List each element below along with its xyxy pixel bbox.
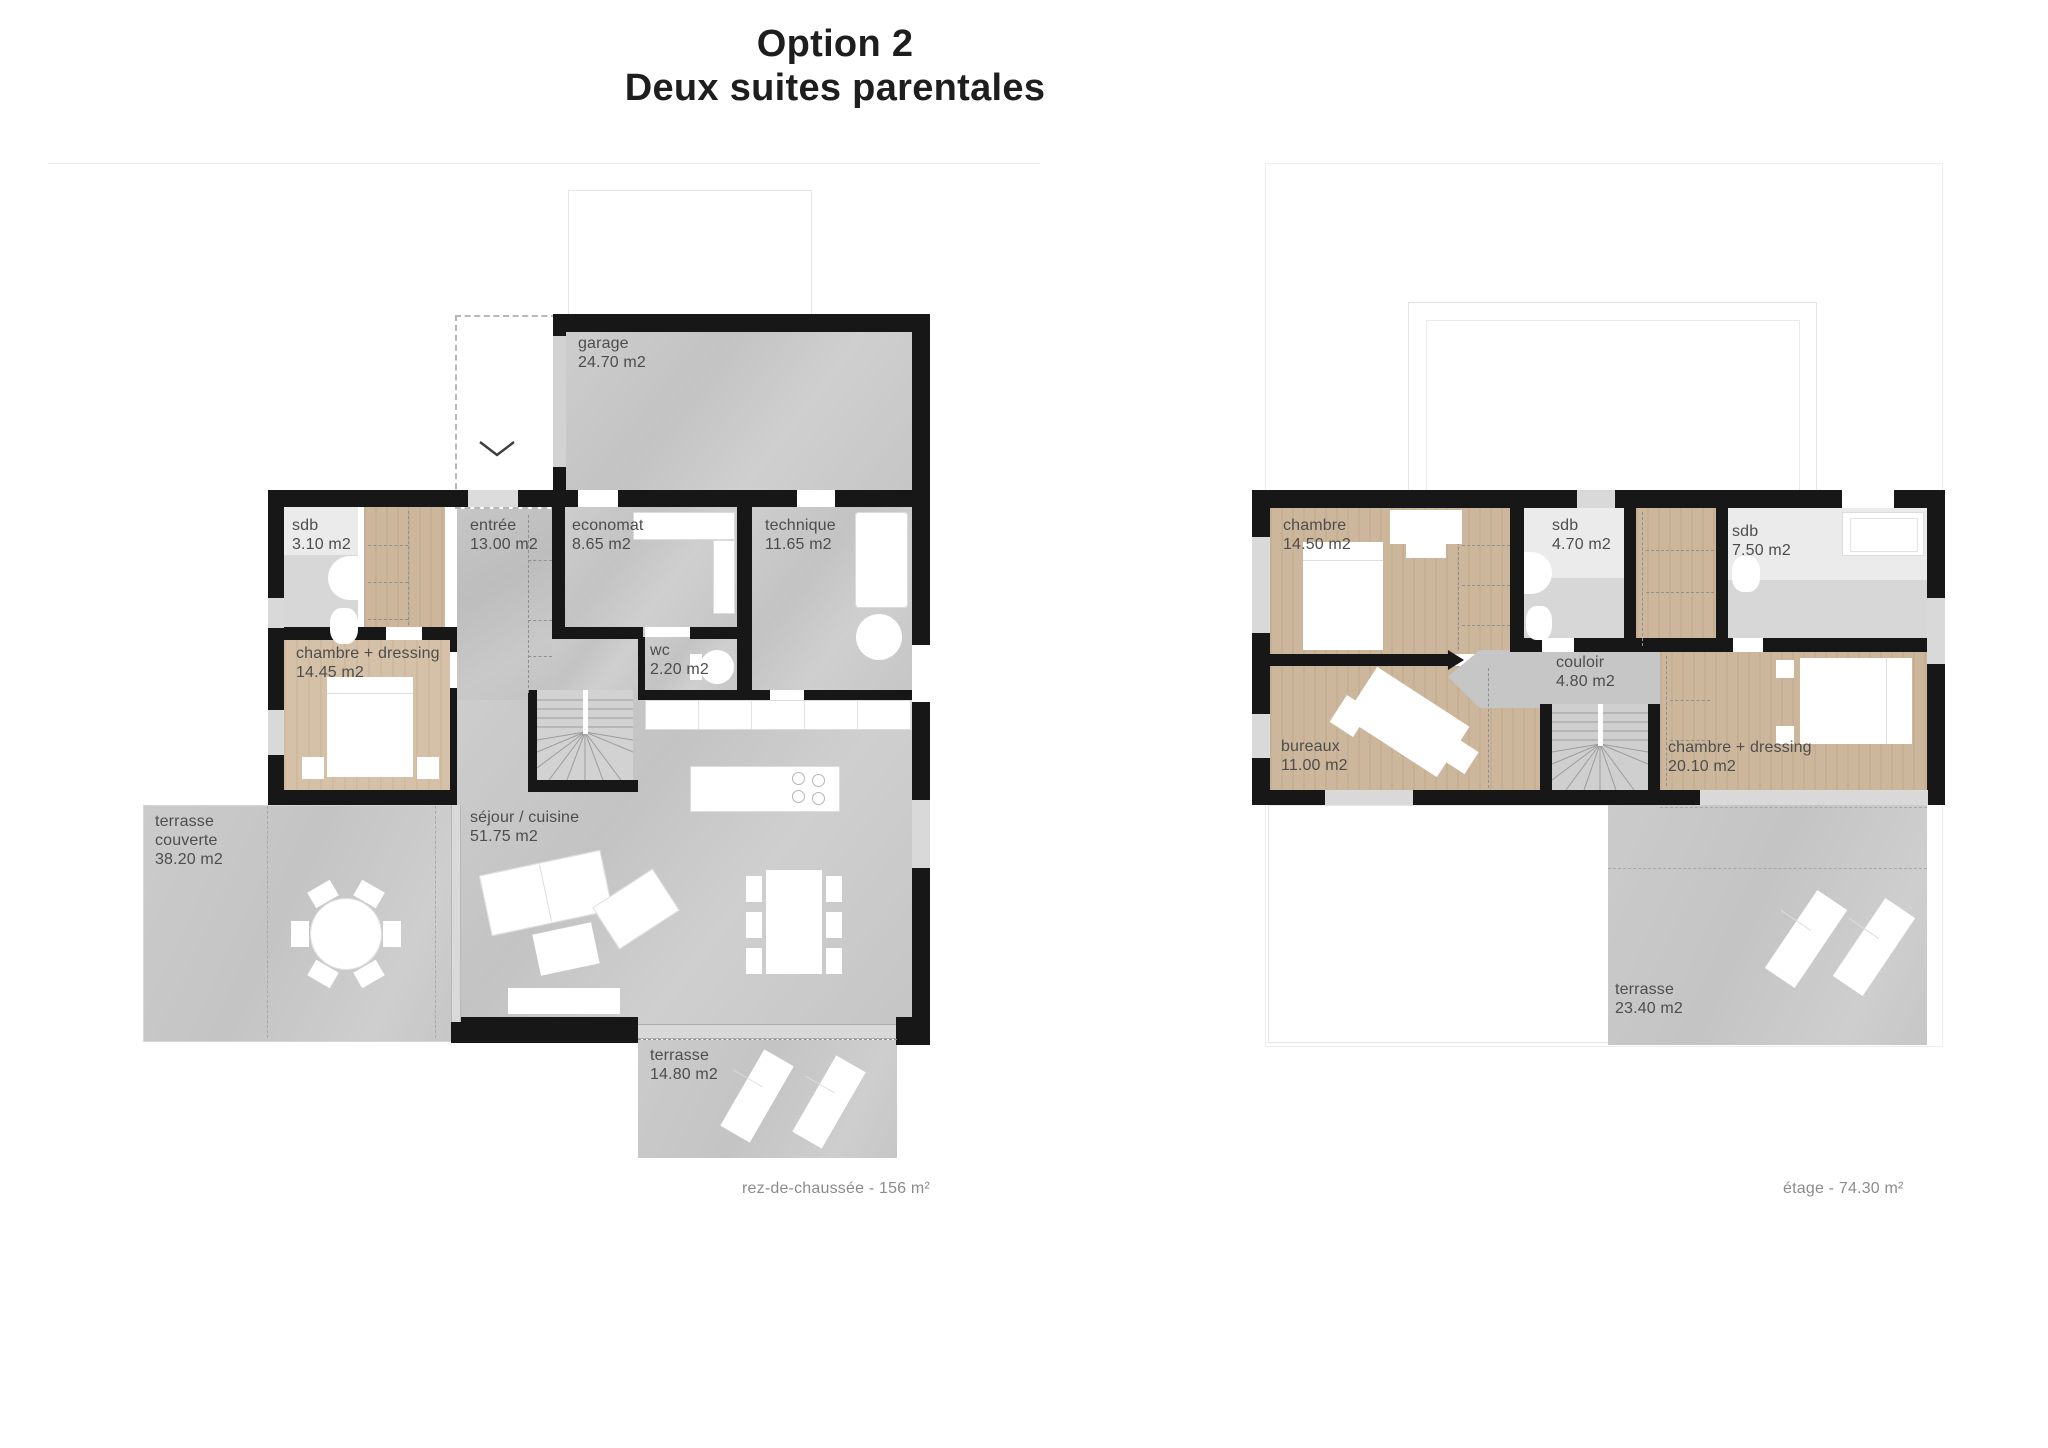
- wall: [268, 490, 284, 805]
- kitchen-counter: [645, 700, 912, 730]
- nightstand: [302, 757, 324, 779]
- wardrobe-mark: [368, 619, 408, 620]
- door-opening: [386, 627, 422, 640]
- wardrobe-mark: [368, 582, 408, 583]
- garage-door: [553, 336, 566, 467]
- room-label-terrasse-couverte: terrasse couverte38.20 m2: [155, 812, 239, 869]
- room-label-sdb: sdb3.10 m2: [292, 516, 351, 554]
- nightstand: [417, 757, 439, 779]
- wall: [1540, 704, 1552, 790]
- room-label-economat: economat8.65 m2: [572, 516, 643, 554]
- chevron-down-icon: [478, 440, 516, 458]
- glass-wall: [451, 805, 461, 1022]
- floor-plan-sheet: Option 2 Deux suites parentales: [0, 0, 2048, 1448]
- wardrobe-mark: [408, 511, 409, 625]
- bed-pillow-line: [327, 693, 413, 694]
- wall: [553, 314, 930, 332]
- door-threshold: [1577, 490, 1615, 508]
- wardrobe-mark: [1462, 625, 1510, 626]
- toilet: [330, 608, 358, 644]
- wardrobe-mark: [1646, 592, 1714, 593]
- chair: [826, 876, 842, 902]
- chair: [826, 912, 842, 938]
- room-label-garage: garage24.70 m2: [578, 334, 646, 372]
- boiler: [855, 512, 908, 608]
- chair: [291, 921, 309, 947]
- toilet: [1526, 606, 1552, 640]
- window: [797, 490, 835, 507]
- roof-outline: [1426, 320, 1800, 504]
- wall: [638, 637, 645, 700]
- construction-line: [528, 656, 552, 657]
- cooktop: [790, 770, 834, 808]
- wardrobe-mark: [1646, 550, 1714, 551]
- wall: [1270, 654, 1448, 666]
- wall: [690, 627, 737, 639]
- dressing-wardrobe-floor: [364, 507, 445, 627]
- shelving: [633, 512, 735, 540]
- plan-caption-etage: étage - 74.30 m²: [1783, 1180, 1904, 1198]
- driveway-outline: [455, 315, 557, 509]
- bed-pillow-line: [1886, 658, 1887, 744]
- shelving: [713, 540, 735, 614]
- construction-line: [528, 620, 552, 621]
- nightstand: [1776, 660, 1794, 678]
- wall: [553, 314, 566, 336]
- construction-line: [1608, 868, 1927, 869]
- window: [268, 710, 284, 755]
- chair: [746, 948, 762, 974]
- wall: [912, 702, 930, 800]
- room-label-wc: wc2.20 m2: [650, 641, 709, 679]
- water-heater: [856, 614, 902, 660]
- bathtub-inner-line: [1850, 518, 1918, 552]
- room-label-chambre: chambre14.50 m2: [1283, 516, 1351, 554]
- wardrobe-mark: [368, 545, 408, 546]
- room-label-chambre-dressing: chambre + dressing14.45 m2: [296, 644, 440, 682]
- sliding-door: [638, 1024, 896, 1039]
- stairs: [537, 690, 633, 780]
- window: [268, 598, 284, 628]
- plan-caption-rdc: rez-de-chaussée - 156 m²: [742, 1180, 930, 1198]
- wall: [268, 790, 457, 805]
- wardrobe-mark: [1462, 585, 1510, 586]
- bed: [327, 677, 413, 777]
- wall: [552, 507, 565, 627]
- chair: [383, 921, 401, 947]
- glass-wall: [1700, 790, 1928, 805]
- dresser: [1390, 510, 1462, 544]
- bed-pillow-line: [1303, 560, 1383, 561]
- wardrobe-mark: [1670, 700, 1710, 701]
- construction-line: [435, 806, 436, 1038]
- dresser-knob: [1406, 544, 1446, 558]
- window: [1927, 598, 1945, 664]
- room-label-terrasse: terrasse23.40 m2: [1615, 980, 1683, 1018]
- room-label-sdb2: sdb7.50 m2: [1732, 522, 1791, 560]
- window: [1842, 490, 1894, 508]
- wall: [552, 627, 643, 639]
- window: [578, 490, 618, 507]
- chair: [746, 912, 762, 938]
- window: [1325, 790, 1413, 805]
- roof-void: [1268, 805, 1610, 1043]
- wall: [1716, 508, 1728, 650]
- title-line-1: Option 2: [625, 22, 1046, 66]
- window: [1252, 714, 1270, 758]
- wall: [912, 314, 930, 645]
- construction-line: [267, 806, 268, 1038]
- room-label-entree: entrée13.00 m2: [470, 516, 538, 554]
- toilet: [1732, 556, 1760, 592]
- wall: [284, 627, 450, 640]
- round-table: [310, 898, 382, 970]
- wardrobe-strip-floor: [1636, 508, 1716, 650]
- couloir-floor: [1448, 650, 1660, 708]
- wall: [1648, 704, 1660, 790]
- room-label-chambre-dressing: chambre + dressing20.10 m2: [1668, 738, 1812, 776]
- wall: [737, 507, 752, 700]
- door-opening: [1542, 638, 1574, 652]
- wall-arrow-tip: [1448, 650, 1464, 670]
- construction-line: [1660, 807, 1927, 808]
- wall: [451, 1017, 638, 1043]
- door-opening: [450, 652, 457, 688]
- stairs: [1552, 704, 1648, 790]
- window: [1252, 537, 1270, 633]
- sideboard: [508, 988, 620, 1014]
- construction-line: [528, 560, 552, 561]
- room-label-terrasse: terrasse14.80 m2: [650, 1046, 718, 1084]
- wardrobe-mark: [1666, 656, 1667, 786]
- construction-line: [1488, 668, 1489, 788]
- sejour-cuisine-floor: [457, 700, 912, 1026]
- door-opening: [1733, 638, 1763, 652]
- wardrobe-mark: [1642, 512, 1643, 646]
- room-label-technique: technique11.65 m2: [765, 516, 836, 554]
- dining-table: [766, 870, 822, 974]
- room-label-sejour-cuisine: séjour / cuisine51.75 m2: [470, 808, 579, 846]
- construction-line: [638, 1039, 897, 1040]
- title-line-2: Deux suites parentales: [625, 66, 1046, 110]
- room-label-bureaux: bureaux11.00 m2: [1281, 737, 1348, 775]
- page-title: Option 2 Deux suites parentales: [625, 22, 1046, 110]
- chair: [826, 948, 842, 974]
- wall: [1510, 508, 1524, 650]
- room-label-couloir: couloir4.80 m2: [1556, 653, 1615, 691]
- chair: [746, 876, 762, 902]
- bed: [1800, 658, 1912, 744]
- wall: [528, 690, 537, 790]
- wall: [528, 780, 638, 792]
- room-label-sdb1: sdb4.70 m2: [1552, 516, 1611, 554]
- wall: [896, 1017, 930, 1045]
- wardrobe-mark: [1462, 545, 1510, 546]
- entry-door: [468, 490, 518, 507]
- wall: [1624, 508, 1636, 650]
- window: [912, 800, 930, 868]
- bed: [1303, 542, 1383, 650]
